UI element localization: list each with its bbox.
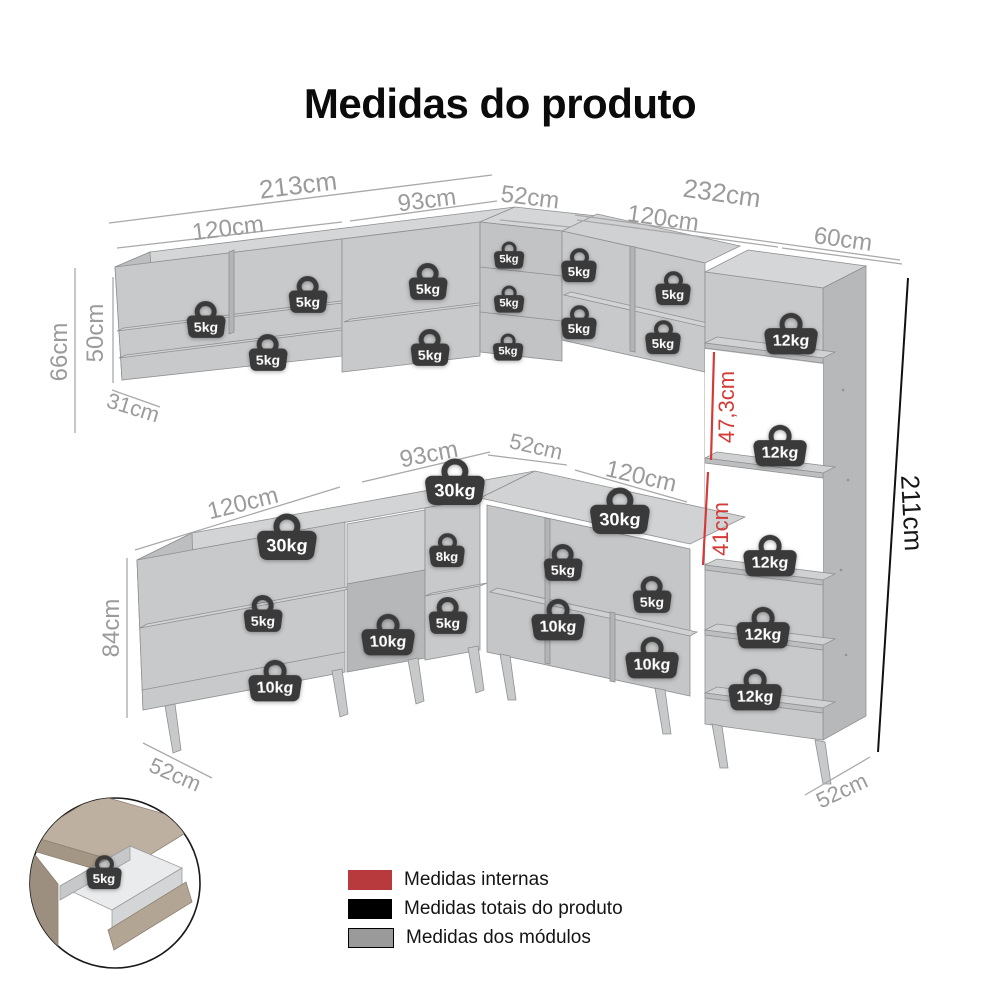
legend-label: Medidas totais do produto bbox=[404, 898, 623, 920]
legend-item-internal: Medidas internas bbox=[348, 869, 623, 890]
dim-base-height: 84cm bbox=[100, 599, 124, 658]
tall-cabinet bbox=[705, 250, 866, 740]
legend-item-total: Medidas totais do produto bbox=[348, 898, 623, 919]
legend-label: Medidas internas bbox=[404, 869, 549, 891]
legend-item-modules: Medidas dos módulos bbox=[348, 927, 623, 948]
legend-swatch-black bbox=[348, 899, 392, 919]
legend: Medidas internas Medidas totais do produ… bbox=[348, 869, 623, 956]
product-measurement-diagram bbox=[0, 0, 1000, 1000]
page-title: Medidas do produto bbox=[0, 80, 1000, 128]
dim-internal-upper: 47,3cm bbox=[716, 371, 738, 443]
drawer-inset bbox=[28, 795, 200, 968]
dim-wall-height-total: 66cm bbox=[48, 323, 72, 382]
legend-swatch-red bbox=[348, 870, 392, 890]
legend-label: Medidas dos módulos bbox=[406, 927, 591, 949]
legend-swatch-gray bbox=[348, 928, 394, 948]
dim-total-height: 211cm bbox=[897, 474, 927, 551]
dim-internal-lower: 41cm bbox=[710, 502, 732, 556]
dim-wall-height: 50cm bbox=[84, 304, 108, 363]
